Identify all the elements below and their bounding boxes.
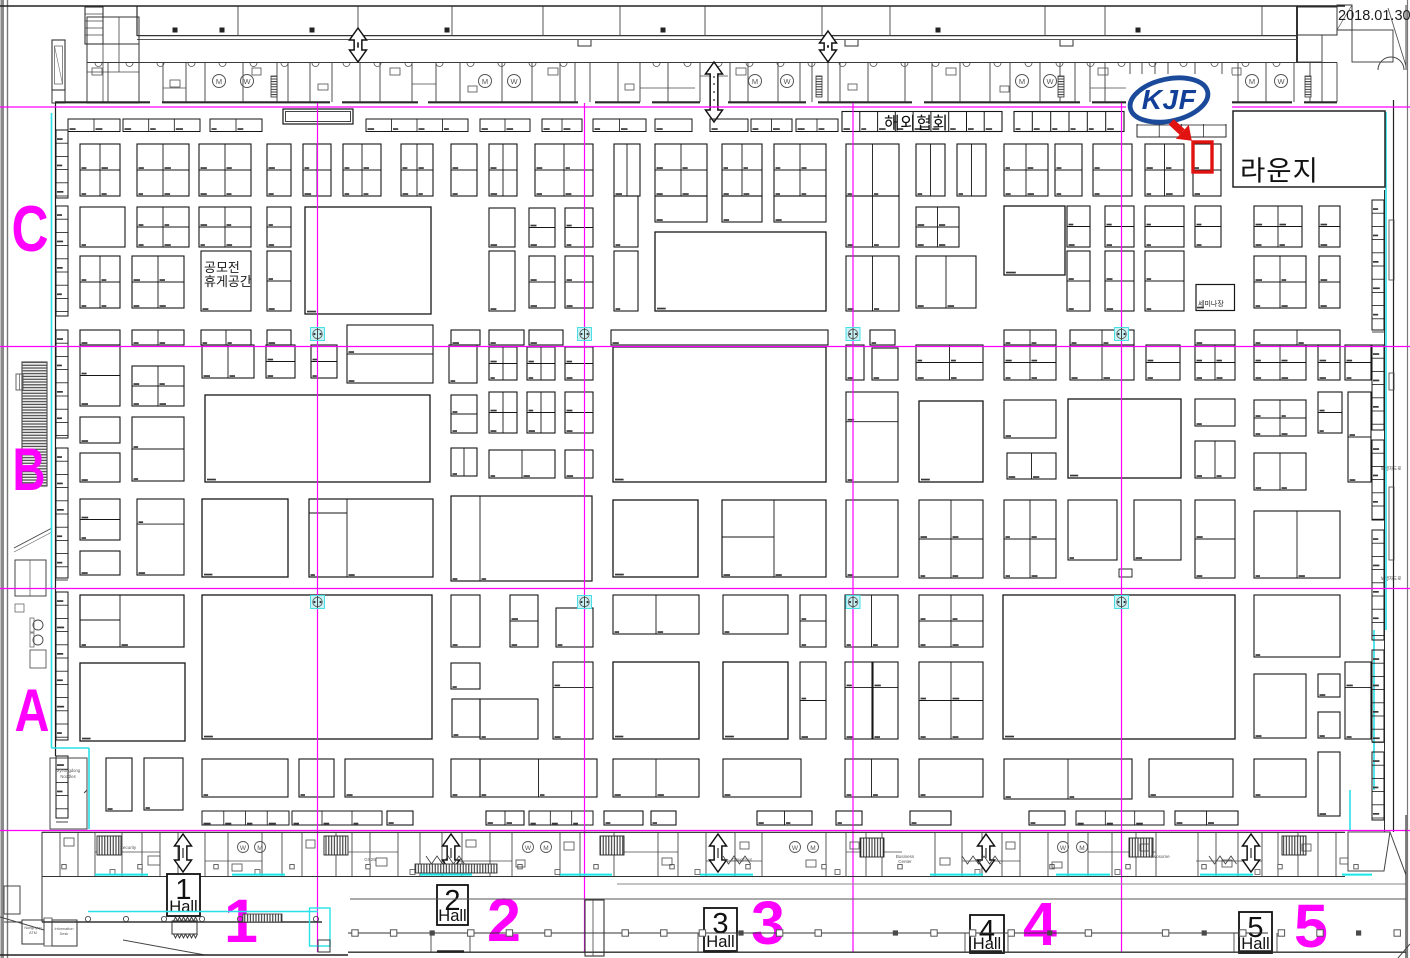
svg-text:W: W	[243, 77, 251, 86]
svg-text:세미나장: 세미나장	[1198, 299, 1224, 308]
svg-text:W: W	[783, 77, 791, 86]
svg-text:5: 5	[1294, 892, 1328, 958]
svg-text:2: 2	[487, 886, 521, 954]
svg-text:W: W	[510, 77, 518, 86]
svg-text:A: A	[15, 677, 50, 744]
svg-text:W: W	[1060, 845, 1067, 852]
svg-text:ATM: ATM	[29, 931, 37, 935]
svg-text:M: M	[257, 845, 262, 852]
svg-text:Security: Security	[120, 845, 137, 850]
svg-text:W: W	[1277, 77, 1285, 86]
svg-text:M: M	[482, 77, 488, 86]
svg-text:휴게공간: 휴게공간	[204, 274, 252, 289]
svg-text:Hall: Hall	[706, 933, 734, 951]
svg-text:W: W	[525, 845, 532, 852]
svg-text:해외협회: 해외협회	[884, 114, 949, 133]
svg-text:라운지: 라운지	[1240, 155, 1319, 186]
svg-text:Noodles: Noodles	[60, 774, 75, 779]
svg-text:Information: Information	[55, 927, 74, 931]
svg-text:Twosome: Twosome	[1150, 854, 1170, 859]
svg-text:KJF: KJF	[1142, 84, 1197, 115]
svg-text:Nonghyup: Nonghyup	[24, 926, 41, 930]
svg-text:GS25: GS25	[364, 857, 376, 862]
svg-text:M: M	[1079, 845, 1084, 852]
svg-text:공모전: 공모전	[204, 260, 240, 275]
svg-text:M: M	[216, 77, 222, 86]
svg-text:Hall: Hall	[169, 898, 197, 916]
svg-text:M: M	[1019, 77, 1025, 86]
svg-text:M: M	[543, 845, 548, 852]
svg-text:Desk: Desk	[60, 932, 69, 936]
svg-text:Myeongdong: Myeongdong	[56, 768, 81, 773]
svg-text:4: 4	[1023, 890, 1057, 958]
svg-text:W: W	[240, 845, 247, 852]
svg-text:M: M	[1249, 77, 1255, 86]
svg-text:C: C	[12, 192, 49, 265]
svg-text:M: M	[810, 845, 815, 852]
svg-text:Doughnut: Doughnut	[732, 857, 752, 862]
svg-text:W: W	[1046, 77, 1054, 86]
svg-text:W: W	[792, 845, 799, 852]
svg-text:2018.01.30: 2018.01.30	[1338, 8, 1410, 24]
svg-text:M: M	[752, 77, 758, 86]
svg-text:B: B	[13, 436, 46, 503]
svg-text:Hall: Hall	[438, 907, 466, 925]
svg-text:Center: Center	[898, 859, 912, 864]
